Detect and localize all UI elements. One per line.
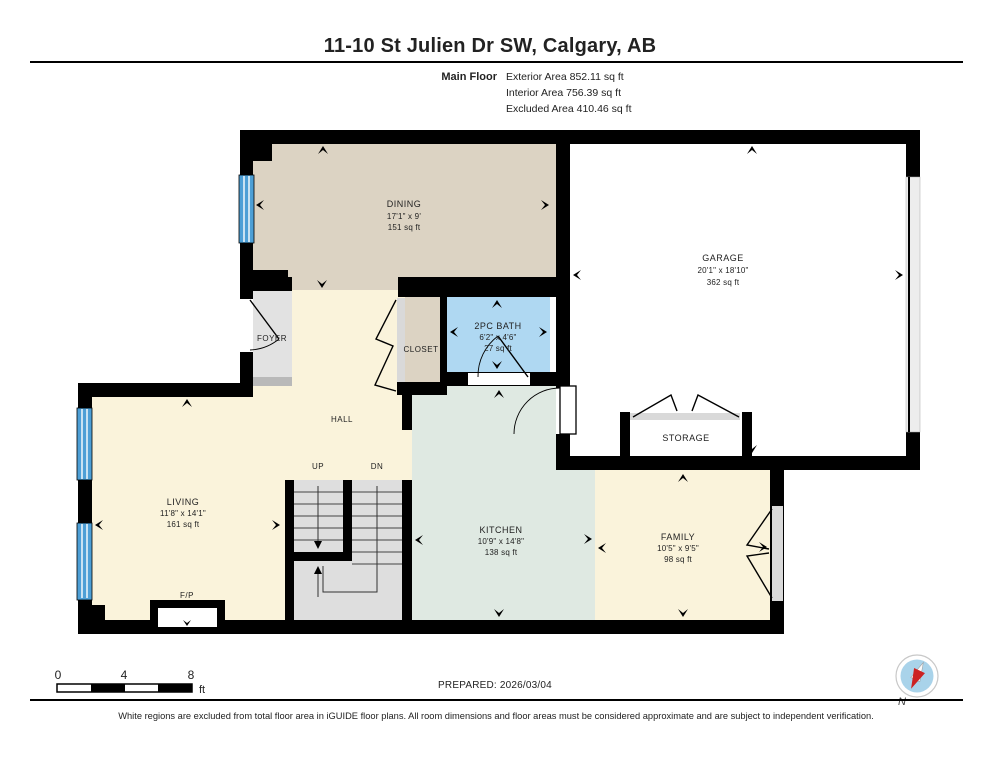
notch-dining-tl — [253, 144, 272, 161]
closet-threshold — [397, 298, 405, 386]
closet-floor — [405, 297, 440, 382]
floorplan-page: 11-10 St Julien Dr SW, Calgary, AB Main … — [0, 0, 993, 768]
hall-kitchen-opening — [402, 430, 412, 480]
svg-text:362 sq ft: 362 sq ft — [707, 278, 740, 287]
wall-living-top — [78, 383, 253, 397]
notch-living-bl — [92, 605, 105, 620]
wall-dining-bottom-right — [398, 277, 570, 297]
svg-text:27 sq ft: 27 sq ft — [484, 344, 512, 353]
svg-text:6'2" x 4'6": 6'2" x 4'6" — [479, 333, 516, 342]
svg-text:20'1" x 18'10": 20'1" x 18'10" — [697, 266, 748, 275]
svg-text:KITCHEN: KITCHEN — [479, 525, 522, 535]
label-hall: HALL — [331, 415, 353, 424]
garage-door-icon — [906, 177, 920, 432]
scale-tick-0: 0 — [55, 668, 62, 682]
svg-text:138 sq ft: 138 sq ft — [485, 548, 518, 557]
svg-text:98 sq ft: 98 sq ft — [664, 555, 692, 564]
page-title: 11-10 St Julien Dr SW, Calgary, AB — [324, 35, 656, 57]
window-living-1-icon — [77, 408, 92, 480]
label-closet: CLOSET — [403, 345, 438, 354]
floor-plan: DINING 17'1" x 9' 151 sq ft GARAGE 20'1"… — [77, 130, 920, 634]
svg-text:151 sq ft: 151 sq ft — [388, 223, 421, 232]
interior-area: Interior Area 756.39 sq ft — [506, 87, 621, 99]
compass-n-label: N — [898, 696, 906, 708]
svg-text:LIVING: LIVING — [167, 497, 200, 507]
svg-text:11'8" x 14'1": 11'8" x 14'1" — [160, 509, 206, 518]
notch-dining-bl — [253, 270, 288, 291]
wall-top — [240, 130, 920, 144]
svg-text:DINING: DINING — [387, 199, 422, 209]
svg-text:10'9" x 14'8": 10'9" x 14'8" — [478, 537, 524, 546]
wall-stairs-right — [402, 480, 412, 620]
label-foyer: FOYER — [257, 334, 287, 343]
wall-stairs-divider — [343, 480, 352, 561]
svg-text:2PC BATH: 2PC BATH — [474, 321, 521, 331]
label-stairs-dn: DN — [371, 462, 384, 471]
garage-floor — [570, 144, 906, 456]
exterior-area: Exterior Area 852.11 sq ft — [506, 71, 624, 83]
scale-tick-8: 8 — [188, 668, 195, 682]
wall-garage-bottom — [556, 456, 920, 470]
label-storage: STORAGE — [662, 433, 709, 443]
header: 11-10 St Julien Dr SW, Calgary, AB Main … — [30, 35, 963, 115]
wall-left-upper — [240, 130, 253, 397]
scale-bar: 0 4 8 ft — [55, 668, 205, 696]
label-dining: DINING 17'1" x 9' 151 sq ft — [387, 199, 422, 232]
disclaimer-text: White regions are excluded from total fl… — [118, 711, 874, 721]
scale-bar-seg2 — [158, 684, 192, 692]
wall-stairs-landing — [294, 552, 352, 561]
window-living-2-icon — [77, 523, 92, 600]
svg-text:17'1" x 9': 17'1" x 9' — [387, 212, 421, 221]
svg-text:GARAGE: GARAGE — [702, 253, 744, 263]
floor-label: Main Floor — [441, 71, 497, 83]
label-fireplace: F/P — [180, 591, 194, 600]
svg-text:161 sq ft: 161 sq ft — [167, 520, 200, 529]
wall-storage-left — [620, 412, 630, 456]
scale-unit: ft — [199, 684, 205, 696]
kitchen-floor-upper — [412, 386, 556, 470]
label-stairs-up: UP — [312, 462, 324, 471]
window-dining-icon — [239, 175, 254, 243]
footer-divider — [30, 699, 963, 701]
header-divider — [30, 61, 963, 63]
svg-text:10'5" x 9'5": 10'5" x 9'5" — [657, 544, 699, 553]
storage-threshold — [630, 413, 740, 420]
scale-tick-4: 4 — [121, 668, 128, 682]
svg-text:FAMILY: FAMILY — [661, 532, 695, 542]
wall-stairs-left — [285, 480, 294, 620]
floorplan-canvas: 11-10 St Julien Dr SW, Calgary, AB Main … — [0, 0, 993, 768]
scale-bar-seg1 — [91, 684, 125, 692]
foyer-threshold — [253, 377, 292, 386]
wall-stub-closet — [402, 382, 412, 430]
label-living: LIVING 11'8" x 14'1" 161 sq ft — [160, 497, 206, 529]
excluded-area: Excluded Area 410.46 sq ft — [506, 103, 632, 115]
prepared-date: PREPARED: 2026/03/04 — [438, 680, 552, 691]
